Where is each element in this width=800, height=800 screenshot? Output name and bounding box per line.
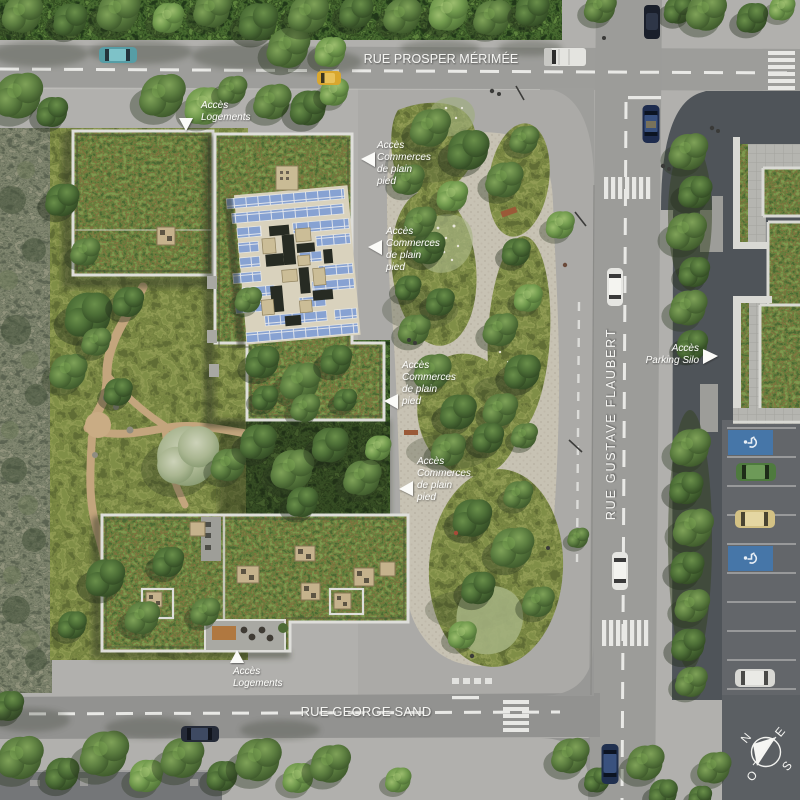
svg-text:Logements: Logements	[233, 678, 282, 689]
svg-text:Accès: Accès	[671, 343, 699, 354]
svg-text:Commerces: Commerces	[402, 372, 456, 383]
svg-text:pied: pied	[376, 176, 396, 187]
svg-text:Accès: Accès	[232, 666, 260, 677]
svg-text:de plain: de plain	[402, 384, 437, 395]
svg-text:RUE GEORGE SAND: RUE GEORGE SAND	[301, 704, 432, 719]
svg-text:Accès: Accès	[385, 226, 413, 237]
svg-text:Parking Silo: Parking Silo	[646, 355, 700, 366]
svg-text:Accès: Accès	[401, 360, 429, 371]
svg-text:Logements: Logements	[201, 112, 250, 123]
svg-text:Accès: Accès	[376, 140, 404, 151]
svg-text:Accès: Accès	[416, 456, 444, 467]
svg-text:Commerces: Commerces	[417, 468, 471, 479]
svg-text:Accès: Accès	[200, 100, 228, 111]
svg-text:Commerces: Commerces	[386, 238, 440, 249]
svg-text:RUE GUSTAVE FLAUBERT: RUE GUSTAVE FLAUBERT	[604, 328, 618, 520]
svg-text:pied: pied	[401, 396, 421, 407]
svg-text:de plain: de plain	[377, 164, 412, 175]
svg-text:de plain: de plain	[417, 480, 452, 491]
svg-text:de plain: de plain	[386, 250, 421, 261]
svg-text:pied: pied	[416, 492, 436, 503]
svg-text:RUE PROSPER MÉRIMÉE: RUE PROSPER MÉRIMÉE	[364, 51, 519, 66]
svg-text:pied: pied	[385, 262, 405, 273]
svg-text:Commerces: Commerces	[377, 152, 431, 163]
